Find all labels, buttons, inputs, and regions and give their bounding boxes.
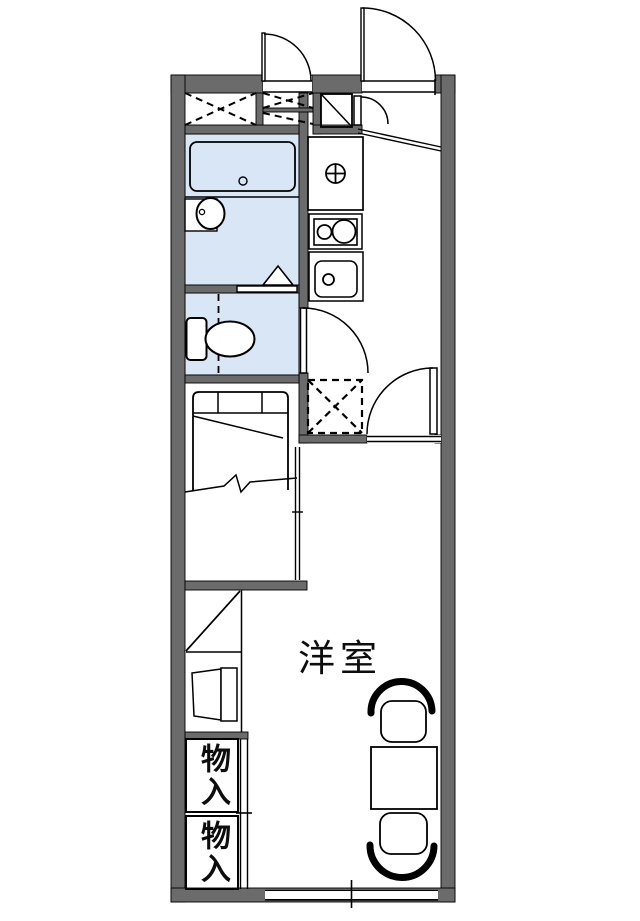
storage-label-2: 物入 [186,818,238,888]
top-wall-middle [312,75,362,93]
floor-plan-drawing [0,0,640,921]
bed-outline [193,392,288,491]
kitchen [308,137,363,301]
room-door-leaf [430,368,437,434]
window [265,880,438,908]
entrance-door-threshold [362,76,435,92]
entrance [321,94,441,151]
right-wall [441,75,455,902]
left-wall [171,75,185,902]
stove-burner-small [318,225,332,239]
refrigerator-door [192,669,221,720]
center-wall-lower [299,373,308,443]
sink-basin [315,261,357,297]
toilet-bottom-wall [185,375,299,383]
room-door-arc [367,368,433,434]
storage-door-arc [264,34,311,81]
bathroom-top-wall [185,125,299,134]
shoe-cabinet-door-arc [361,97,388,124]
storage-label-1: 物入 [186,741,238,811]
closet-jamb [256,93,263,125]
storage-door-threshold [263,76,312,92]
toilet-door-arc [303,308,368,373]
bed [185,392,297,492]
dining-set [370,682,437,878]
toilet-bowl [206,322,255,357]
shoe-cabinet-diagonal [321,94,352,127]
entrance-door-leaf [361,8,364,81]
toilet-door-leaf [301,308,307,373]
appliance-alcove [186,590,242,732]
room-label: 洋室 [298,628,382,682]
washbasin-faucet [199,209,204,214]
shoe-cabinet-door-leaf [354,96,361,125]
storage-door-leaf [262,33,265,81]
bedroom-bottom-wall [185,581,307,590]
center-wall-upper [299,93,308,308]
washing-machine-space [308,380,362,433]
hall-room-wall [299,435,367,443]
stove-burner-large [333,220,356,243]
entrance-door-arc [363,8,436,81]
toilet-tank [187,318,207,360]
chair-seat-bottom [380,813,427,854]
genkan-step-line [358,129,441,147]
alcove-diagonal [186,591,240,651]
chair-seat-top [381,701,426,742]
genkan-step-line [358,133,441,151]
closet2-divider [263,108,313,112]
bathroom-sliding-door [237,286,297,292]
floor-plan: 洋室 物入 物入 [0,0,640,921]
refrigerator-body [221,668,237,721]
dining-table [371,747,437,809]
alcove-stub-wall [185,732,248,739]
bath-toilet-wall-left [185,285,237,293]
sink-drain [323,274,334,285]
